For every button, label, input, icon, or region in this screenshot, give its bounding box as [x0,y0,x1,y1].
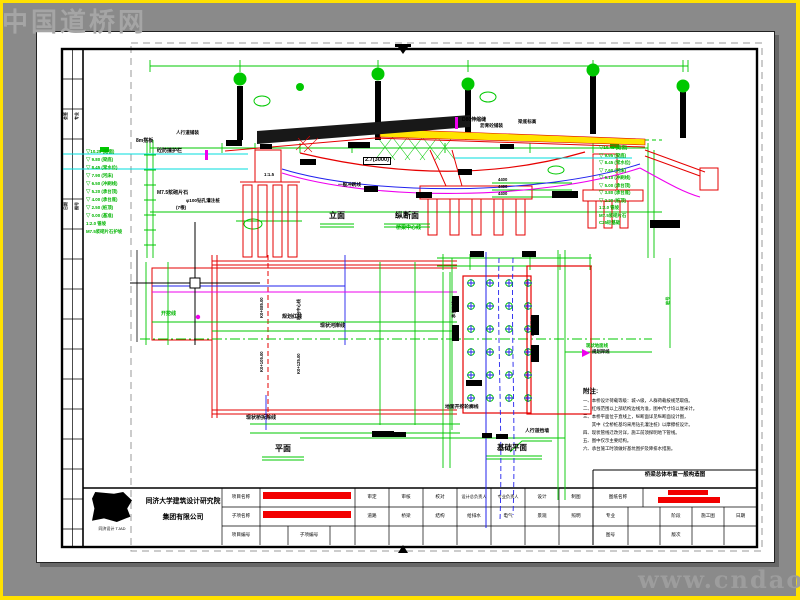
cad-text-label: 桩号 [666,297,670,305]
cad-text-label: 地面开挖轮廓线 [445,406,479,411]
green-line: ▽ 4.00 (承台底) [86,198,117,202]
cad-text-label: 4400 [498,178,507,182]
notes-title: 附注: [583,385,598,395]
cad-text-label: 桥梁中心线 [396,226,421,231]
cad-text-label: 砼防撞护栏 [157,149,182,154]
green-line: 1:2.0 锥坡 [86,222,106,226]
sign2-col-0: 道路 [355,514,389,519]
cad-text-label: 图号 [75,202,79,210]
cad-text-label: 人行道挡墙 [525,430,549,435]
cad-text-label: 专业 [75,112,79,120]
cad-text-label: 承台边线 [452,301,456,318]
green-line: ▽ 9.80 (梁底) [86,158,113,162]
cad-text-label: 4400 [498,192,507,196]
green-line: M7.5浆砌片石护坡 [86,230,122,234]
note-line: 六、承台施工时须做好基坑围护及降排水措施。 [583,447,675,451]
watermark-bottom-right: www.cndao.com [638,565,800,594]
green-line: ▽ 2.50 (桩顶) [86,206,113,210]
sign-col-jiaodui: 校对 [423,495,457,500]
sign2-col-4: 电气 [491,514,525,519]
view-title-foundation-plan: 基础平面 [482,444,542,452]
view-title-plan: 平面 [260,445,306,453]
cad-text-label: 一般冲刷线 [338,183,361,188]
sign-col-shending: 审定 [355,495,389,500]
sign-col-chief-designer: 设计总负责人 [457,495,491,499]
green-line: ▽ 7.90 (河床) [86,174,113,178]
cad-text-label: 日期 [64,202,68,210]
sign-col-zhitu: 制图 [559,495,593,500]
cad-text-label: K0+125.00 [297,353,301,374]
cad-text-label: 桥台中心线 [297,299,301,320]
green-line: M7.5浆砌片石 [599,214,626,218]
cad-text-label: 沥青砼铺装 [480,124,503,129]
green-line: ▽ 2.20 (桩顶) [599,199,626,203]
sign2-col-1: 桥梁 [389,514,423,519]
cad-text-label: K0+085.00 [260,297,264,318]
company-logo [92,492,132,522]
lamp-heads [234,64,690,93]
green-line: ▽ 5.00 (承台顶) [599,184,630,188]
view-title-profile: 纵断面 [382,212,432,220]
company-name-line2: 集团有限公司 [130,514,236,521]
green-line: ▽ 0.00 (基准) [86,214,113,218]
cad-text-label: 现状桥拆除线 [246,416,276,421]
revision-label: 版次 [660,533,692,538]
green-line: ▽ 6.50 (冲刷线) [86,182,117,186]
title-block-grid [83,470,757,545]
green-line: ▽10.45 (路面) [599,146,627,150]
screenshot-root: 砼防撞护栏8m搭板人行道铺装M7.5浆砌片石φ100钻孔灌注桩(7根)1:1.5… [0,0,800,600]
stage-value: 施工图 [692,514,724,519]
cad-text-label: 梁底标高 [518,120,536,125]
substructure-red [240,150,718,257]
cad-text-label: 4400 [498,185,507,189]
sign2-col-2: 结构 [423,514,457,519]
cad-text-label: 8m搭板 [136,139,153,144]
company-name-line1: 同济大学建筑设计研究院 [130,498,236,505]
green-line: ▽10.25 (路面) [86,150,114,154]
date-label: 日期 [724,514,757,519]
cad-text-label: 会签 [64,112,68,120]
cad-text-label: φ80钻孔桩 [531,316,535,336]
sheet-name-label: 图纸名称 [593,495,643,500]
sign-col-discipline-lead: 专业负责人 [491,495,525,499]
note-line: 一、本桥设计荷载等级：城-A级，人群荷载按规范取值。 [583,399,693,403]
cad-text-label: 1:1.5 [264,173,274,177]
green-line: ▽ 8.45 (常水位) [599,161,630,165]
cad-text-label: 开挖线 [161,312,176,317]
cad-text-label: 规划岸线 [592,350,610,354]
sign2-col-3: 给排水 [457,514,491,519]
sign2-col-6: 照明 [559,514,593,519]
sheet-name-redacted-2 [658,497,720,503]
cad-text-label: 现状河岸线 [320,324,345,329]
green-line: 1:2.0 锥坡 [599,206,619,210]
green-line: ▽ 3.80 (承台底) [599,191,630,195]
discipline-label: 专业 [593,514,628,519]
sign2-col-5: 景观 [525,514,559,519]
green-line: ▽ 6.10 (冲刷线) [599,176,630,180]
green-line: C25砼基础 [599,221,620,225]
sign-col-shenhe: 审核 [389,495,423,500]
subproject-name-redacted [263,511,351,518]
subproject-name-label: 子项名称 [224,514,258,519]
cad-text-label: (7根) [176,206,186,211]
project-number-label: 项目编号 [224,533,258,538]
cad-text-label: K0+105.00 [260,351,264,372]
stage-label: 阶段 [660,514,692,519]
watermark-top-left: 中国道桥网 [2,2,147,39]
green-line: ▽ 8.45 (常水位) [86,166,117,170]
logo-caption: 同济设计 TJAD [85,527,139,531]
cad-text-label: M7.5浆砌片石 [157,191,188,196]
cad-text-label: φ100钻孔灌注桩 [186,199,220,204]
view-title-elevation: 立面 [314,212,360,220]
green-line: ▽ 9.95 (梁底) [599,154,626,158]
cad-text-label: 现状地面线 [586,344,608,348]
sheet-title: 桥梁总体布置一般构造图 [593,473,757,479]
project-name-redacted [263,492,351,499]
green-line: ▽ 5.20 (承台顶) [86,190,117,194]
subproject-number-label: 子项编号 [290,533,328,538]
note-line: 五、图中仅示主要结构。 [583,439,631,443]
sheet-name-redacted-1 [668,490,708,495]
crosshair-cursor [130,222,260,345]
note-line: 二、红线范围以上部结构边线为准，图中尺寸均以厘米计。 [583,407,697,411]
note-line: 其中《全桥桩基均采用钻孔灌注桩》以摩擦桩设计。 [583,423,693,427]
sheet-number-label: 图号 [593,533,628,538]
project-name-label: 项目名称 [224,495,258,500]
cad-text-label: 人行道铺装 [176,131,199,136]
cad-text-label: 2.7(3000) [363,157,391,165]
note-line: 四、现状管线迁改另详，施工前须探明地下管线。 [583,431,680,435]
note-line: 三、本桥平面位于直线上，纵断面详见纵断面设计图， [583,415,688,419]
sign-col-sheji: 设计 [525,495,559,500]
green-line: ▽ 7.60 (河床) [599,169,626,173]
